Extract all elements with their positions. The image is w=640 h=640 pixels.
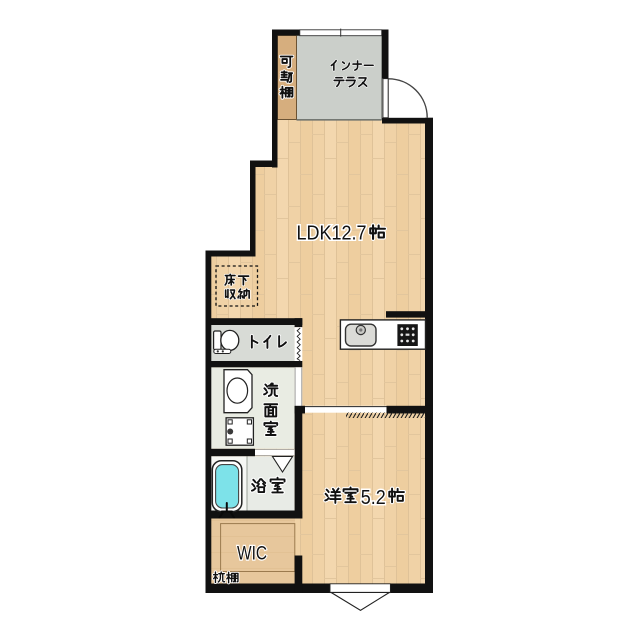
svg-text:5.2: 5.2 xyxy=(361,486,386,509)
svg-text:WIC: WIC xyxy=(237,542,267,564)
svg-text:LDK12.7: LDK12.7 xyxy=(297,222,367,245)
